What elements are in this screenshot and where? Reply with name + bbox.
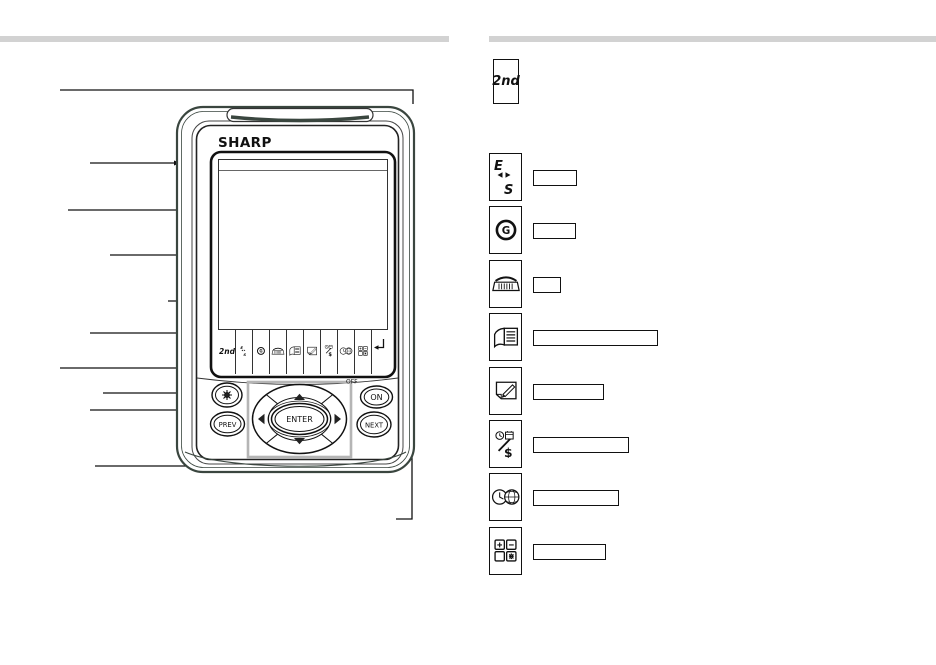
translate-es-key-label-box <box>533 170 577 186</box>
memo-key-icon <box>493 379 519 402</box>
phone-key-icon <box>492 273 520 294</box>
calc-key-icon <box>494 539 517 562</box>
translate-es-key-icon: ES <box>493 158 519 196</box>
translate-es-key: ES <box>489 153 522 201</box>
second-function-key: 2nd <box>493 59 519 104</box>
clock-g-key-label-box <box>533 223 576 239</box>
dollar-glyph: $ <box>504 446 513 458</box>
clock-g-key: G <box>489 206 522 254</box>
world-clock-key-icon <box>491 487 520 507</box>
calc-key-label-box <box>533 544 606 560</box>
calc-key <box>489 527 522 575</box>
world-clock-key <box>489 473 522 521</box>
memo-key <box>489 367 522 415</box>
letter-e: E <box>494 159 503 174</box>
directory-key-label-box <box>533 330 658 346</box>
memo-key-label-box <box>533 384 604 400</box>
world-clock-key-label-box <box>533 490 619 506</box>
schedule-money-key-label-box <box>533 437 629 453</box>
second-function-key-label: 2nd <box>492 74 520 89</box>
schedule-money-key: $ <box>489 420 522 468</box>
letter-g: G <box>501 226 510 238</box>
clock-g-key-icon: G <box>493 217 519 243</box>
key-legend-panel: 2ndESG$ <box>0 0 936 665</box>
phone-key-label-box <box>533 277 561 293</box>
schedule-money-key-icon: $ <box>494 430 517 458</box>
letter-s: S <box>504 183 513 196</box>
directory-key-icon <box>492 326 520 349</box>
directory-key <box>489 313 522 361</box>
phone-key <box>489 260 522 308</box>
